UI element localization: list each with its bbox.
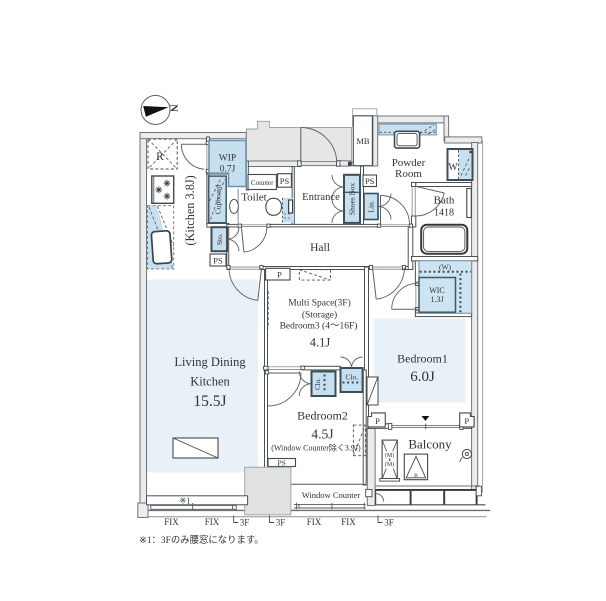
- svg-text:Living Dining: Living Dining: [174, 355, 246, 369]
- svg-text:MB: MB: [356, 136, 370, 146]
- svg-text:Clo.: Clo.: [345, 373, 358, 382]
- svg-text:W: W: [448, 162, 458, 173]
- svg-text:FIX: FIX: [164, 517, 179, 527]
- svg-text:Multi Space(3F): Multi Space(3F): [288, 298, 351, 309]
- svg-text:Sto.: Sto.: [215, 233, 224, 245]
- svg-text:Balcony: Balcony: [408, 437, 452, 452]
- svg-text:Bedroom3 (4～16F): Bedroom3 (4～16F): [280, 321, 358, 332]
- svg-text:0.7J: 0.7J: [220, 165, 236, 175]
- svg-text:PS: PS: [280, 176, 290, 186]
- svg-text:※1: ※1: [180, 497, 191, 506]
- svg-text:(Kitchen 3.8J): (Kitchen 3.8J): [183, 175, 197, 245]
- svg-text:3F: 3F: [240, 518, 250, 528]
- svg-text:Toilet: Toilet: [241, 192, 267, 204]
- svg-text:(Storage): (Storage): [302, 310, 337, 321]
- svg-text:PS: PS: [278, 458, 286, 467]
- svg-text:Counter: Counter: [251, 179, 274, 187]
- svg-text:Clo.: Clo.: [314, 378, 322, 390]
- svg-text:(M): (M): [385, 461, 394, 468]
- svg-text:FIX: FIX: [307, 517, 322, 527]
- svg-text:※1：3Fのみ腰窓になります。: ※1：3Fのみ腰窓になります。: [139, 534, 264, 546]
- svg-text:Cupboard: Cupboard: [214, 184, 223, 214]
- svg-text:Bedroom1: Bedroom1: [397, 352, 448, 366]
- svg-text:N: N: [167, 104, 178, 112]
- svg-text:3F: 3F: [276, 518, 286, 528]
- svg-text:FIX: FIX: [205, 517, 220, 527]
- svg-text:Room: Room: [395, 168, 422, 180]
- svg-text:P: P: [375, 416, 380, 426]
- svg-text:Shoes Box: Shoes Box: [348, 183, 357, 216]
- svg-text:Bedroom2: Bedroom2: [297, 409, 348, 423]
- svg-text:P: P: [464, 416, 469, 426]
- svg-text:1.3J: 1.3J: [430, 295, 443, 304]
- svg-text:P: P: [277, 270, 282, 280]
- svg-text:Entrance: Entrance: [302, 192, 340, 203]
- svg-text:FIX: FIX: [341, 517, 356, 527]
- svg-text:Bath: Bath: [434, 195, 455, 207]
- svg-text:4.5J: 4.5J: [311, 427, 333, 442]
- svg-text:PS: PS: [365, 176, 375, 186]
- svg-text:15.5J: 15.5J: [193, 393, 226, 410]
- svg-text:(M): (M): [385, 452, 394, 459]
- svg-text:WIP: WIP: [219, 154, 236, 164]
- svg-text:1418: 1418: [434, 208, 454, 219]
- svg-text:(W): (W): [439, 263, 452, 272]
- svg-text:Kitchen: Kitchen: [190, 375, 230, 389]
- svg-text:R: R: [156, 151, 164, 163]
- svg-text:WIC: WIC: [429, 286, 445, 295]
- svg-text:(Window Counter除く3.9J): (Window Counter除く3.9J): [271, 443, 361, 453]
- svg-text:PS: PS: [213, 256, 223, 266]
- svg-text:B: B: [414, 473, 418, 479]
- svg-text:6.0J: 6.0J: [410, 369, 435, 385]
- svg-text:4.1J: 4.1J: [310, 336, 331, 350]
- svg-text:3F: 3F: [384, 518, 394, 528]
- svg-text:Window Counter: Window Counter: [302, 490, 361, 500]
- svg-text:Hall: Hall: [310, 242, 330, 254]
- svg-text:Lin.: Lin.: [367, 200, 376, 212]
